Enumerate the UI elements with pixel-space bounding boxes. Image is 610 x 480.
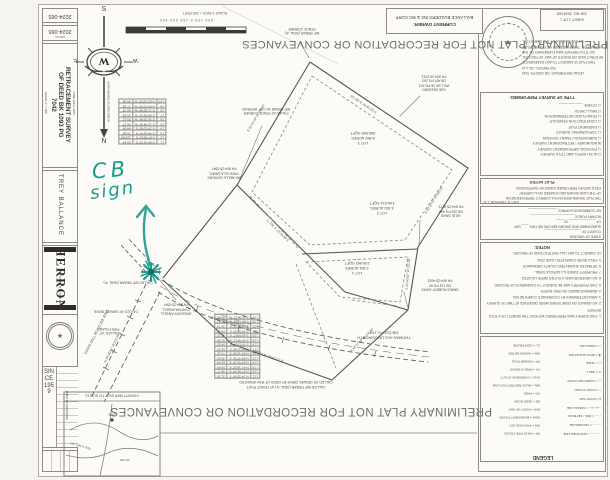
annotation-star [141,261,161,283]
handwritten-annotation-marks [0,0,610,480]
annotation-arrow-stem [144,209,150,265]
scanned-survey-plat: CB sign 2024-065 2024-065 JOB NO. RETRAC… [0,0,610,480]
